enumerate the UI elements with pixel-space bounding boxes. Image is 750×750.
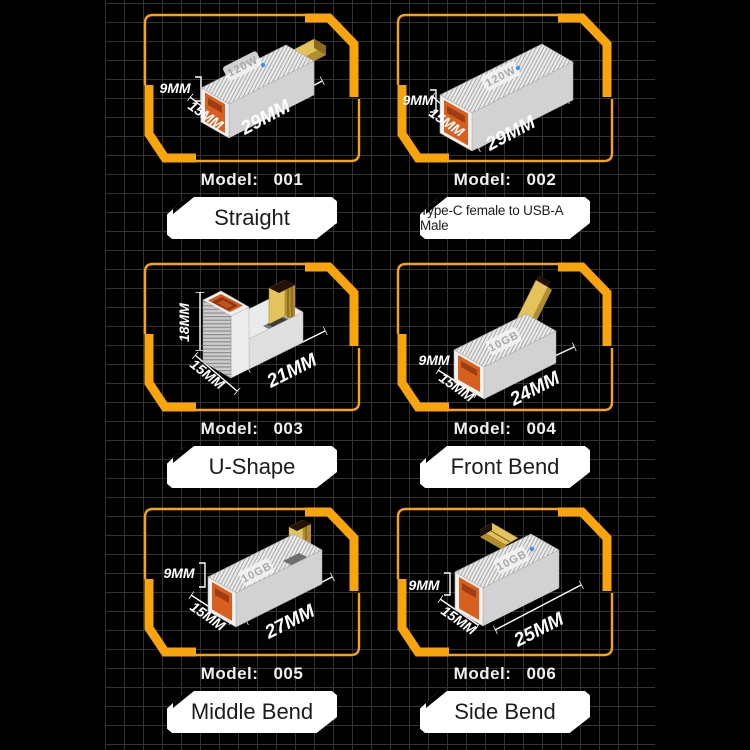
panel-u-shape: 18MM 15MM 21MM Model:003 U-Shape — [143, 262, 361, 488]
led-dot — [261, 63, 265, 67]
panel-side-bend: 10GB 9MM 15MM 25MM Model:006 Side Bend — [396, 507, 614, 733]
plate-notch — [426, 446, 447, 463]
panel-front-bend: 10GB 9MM 15MM 24MM Model:004 Front Bend — [396, 262, 614, 488]
height-bracket — [444, 573, 450, 595]
figure-straight: 120W 9MM 15MM 29MM — [143, 13, 361, 165]
model-row: Model:004 — [396, 419, 614, 439]
figure-side-bend: 10GB 9MM 15MM 25MM — [396, 507, 614, 659]
height-label: 9MM — [408, 577, 439, 593]
height-label: 9MM — [418, 352, 449, 368]
height-label: 9MM — [402, 92, 433, 108]
adapter-illustration: 10GB — [455, 523, 559, 626]
figure-002: 120W 9MM 15MM 29MM — [396, 13, 614, 165]
shape-name-plate: Side Bend — [420, 691, 590, 733]
figure-front-bend: 10GB 9MM 15MM 24MM — [396, 262, 614, 414]
plate-notch — [426, 691, 447, 708]
plate-notch — [173, 446, 194, 463]
height-label: 18MM — [176, 303, 192, 342]
figure-u-shape: 18MM 15MM 21MM — [143, 262, 361, 414]
shape-name-plate: Straight — [167, 197, 337, 239]
model-row: Model:002 — [396, 170, 614, 190]
model-row: Model:001 — [143, 170, 361, 190]
grid-background: 120W 9MM 15MM 29MM Model:001 Straight — [105, 0, 655, 750]
led-dot — [516, 66, 520, 70]
height-label: 9MM — [163, 565, 194, 581]
length-label: 25MM — [510, 608, 569, 652]
tower-side — [231, 307, 249, 378]
adapter-product-sheet: 120W 9MM 15MM 29MM Model:001 Straight — [0, 0, 750, 750]
figure-middle-bend: 10GB 9MM 15MM 27MM — [143, 507, 361, 659]
panel-middle-bend: 10GB 9MM 15MM 27MM Model:005 Middle Bend — [143, 507, 361, 733]
model-row: Model:003 — [143, 419, 361, 439]
height-bracket — [199, 563, 205, 587]
plate-notch — [173, 197, 194, 214]
height-label: 9MM — [159, 80, 190, 96]
shape-name-plate: Middle Bend — [167, 691, 337, 733]
shape-name-plate: Front Bend — [420, 446, 590, 488]
model-row: Model:005 — [143, 664, 361, 684]
panel-typec-female: 120W 9MM 15MM 29MM Model:002 Type-C fema… — [396, 13, 614, 239]
model-row: Model:006 — [396, 664, 614, 684]
led-dot — [530, 547, 534, 551]
shape-name-plate: Type-C female to USB-A Male — [420, 197, 590, 239]
shape-name-plate: U-Shape — [167, 446, 337, 488]
panel-straight: 120W 9MM 15MM 29MM Model:001 Straight — [143, 13, 361, 239]
